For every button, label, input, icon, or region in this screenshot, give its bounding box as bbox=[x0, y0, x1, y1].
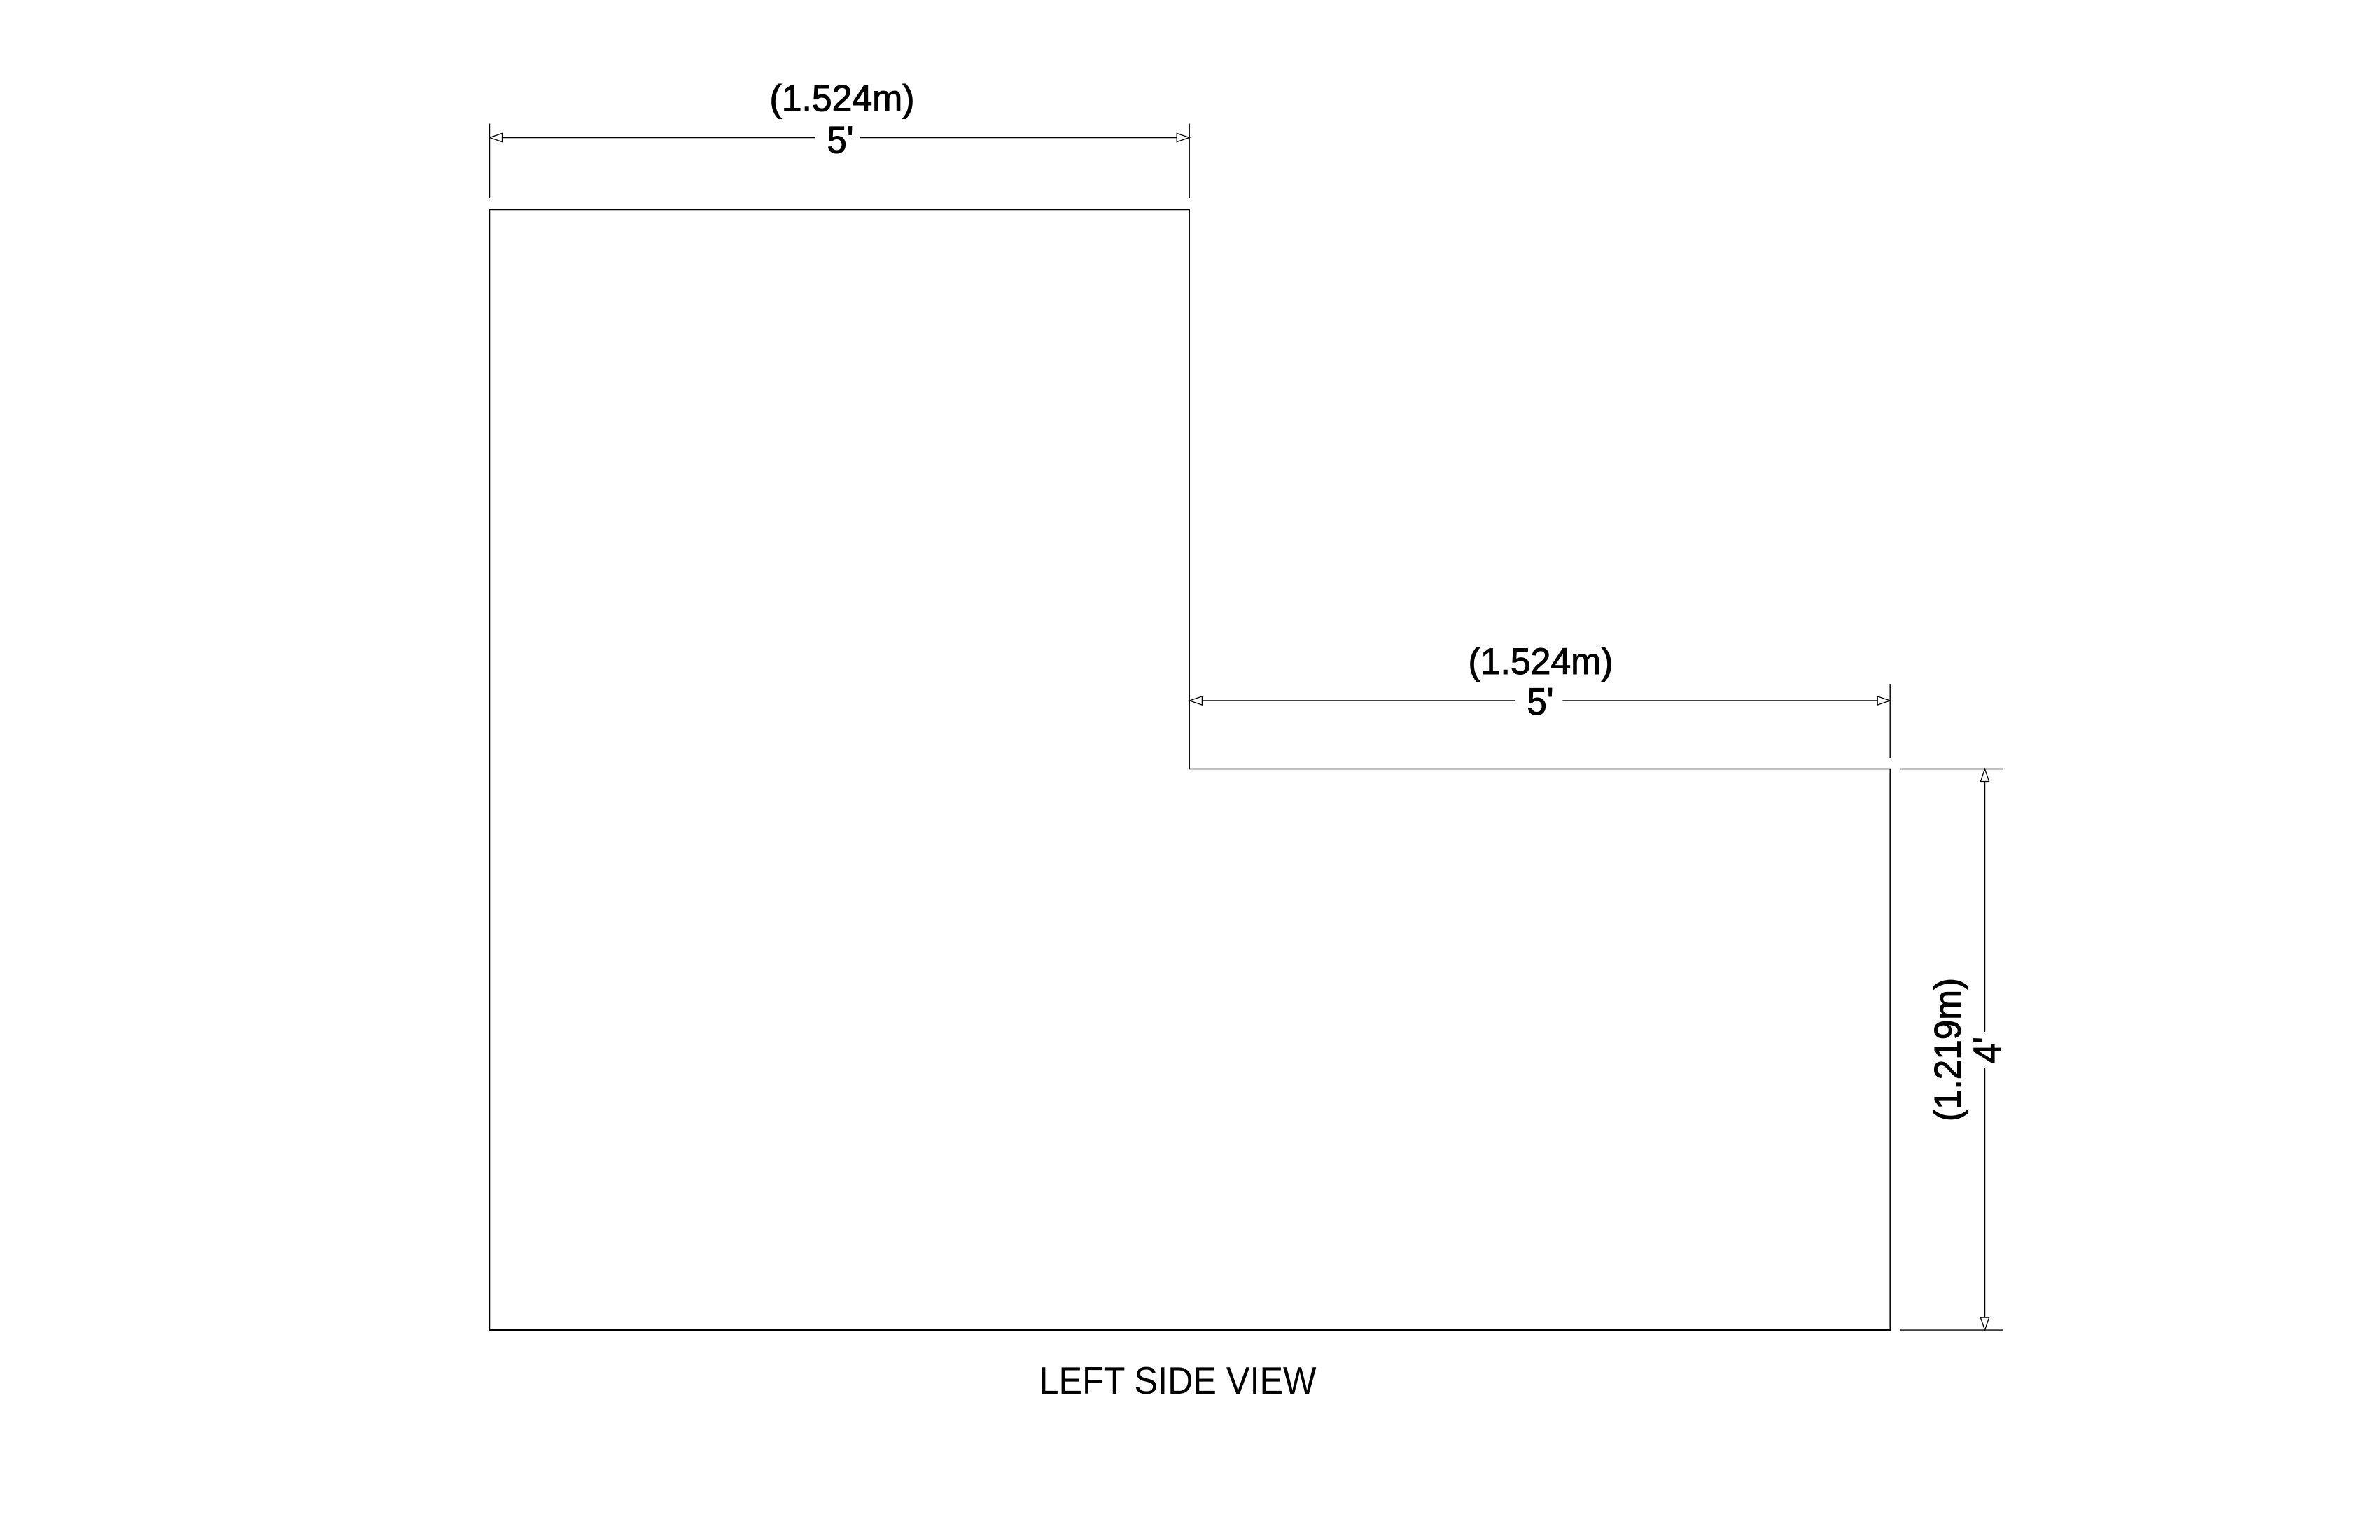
svg-text:(1.524m): (1.524m) bbox=[770, 78, 915, 120]
svg-text:4': 4' bbox=[1965, 1037, 2008, 1063]
svg-text:5': 5' bbox=[1527, 680, 1554, 723]
svg-text:(1.219m): (1.219m) bbox=[1928, 978, 1969, 1121]
svg-text:5': 5' bbox=[827, 118, 854, 162]
svg-text:(1.524m): (1.524m) bbox=[1469, 641, 1613, 682]
svg-text:LEFT SIDE VIEW: LEFT SIDE VIEW bbox=[1039, 1359, 1317, 1402]
